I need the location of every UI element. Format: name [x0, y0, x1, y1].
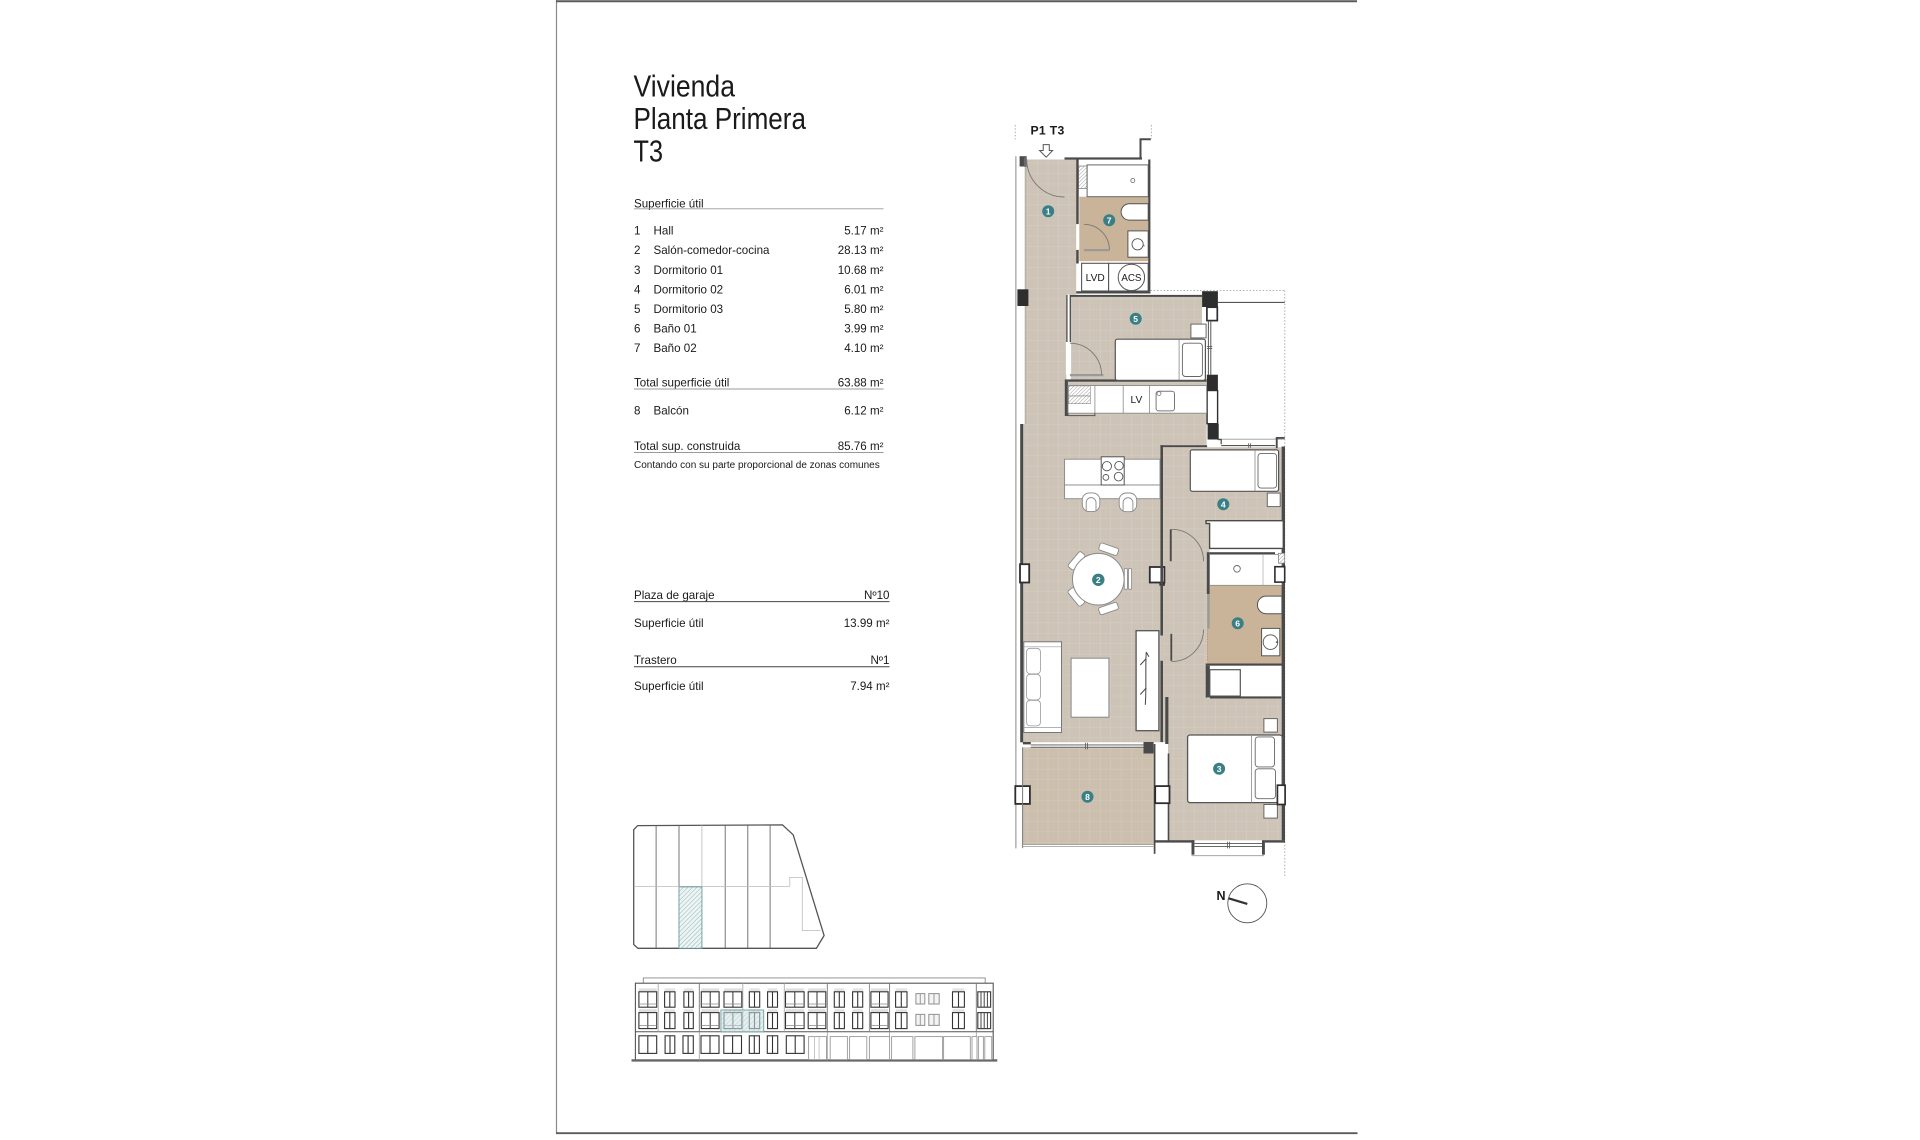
- svg-text:Dormitorio 01: Dormitorio 01: [654, 264, 724, 277]
- svg-text:Baño 01: Baño 01: [654, 323, 697, 336]
- svg-text:3: 3: [634, 264, 640, 277]
- svg-text:Baño 02: Baño 02: [654, 342, 697, 355]
- svg-text:2: 2: [634, 244, 640, 257]
- svg-text:Vivienda: Vivienda: [634, 70, 736, 104]
- svg-text:2: 2: [1096, 575, 1101, 585]
- svg-text:Balcón: Balcón: [654, 404, 689, 417]
- svg-text:Nº10: Nº10: [864, 589, 890, 602]
- svg-text:Hall: Hall: [654, 225, 674, 238]
- svg-text:13.99 m²: 13.99 m²: [844, 617, 890, 630]
- svg-text:5.80 m²: 5.80 m²: [844, 303, 883, 316]
- svg-text:28.13 m²: 28.13 m²: [838, 244, 884, 257]
- svg-text:Salón-comedor-cocina: Salón-comedor-cocina: [654, 244, 771, 257]
- svg-text:N: N: [1217, 889, 1226, 903]
- svg-text:5.17 m²: 5.17 m²: [844, 225, 883, 238]
- svg-text:6: 6: [634, 323, 640, 336]
- svg-text:T3: T3: [634, 135, 664, 169]
- svg-text:7: 7: [634, 342, 640, 355]
- svg-text:Nº1: Nº1: [870, 654, 889, 667]
- svg-text:6.12 m²: 6.12 m²: [844, 404, 883, 417]
- svg-text:8: 8: [1085, 792, 1090, 802]
- svg-text:Plaza de garaje: Plaza de garaje: [634, 589, 715, 602]
- svg-text:6.01 m²: 6.01 m²: [844, 283, 883, 296]
- svg-text:4: 4: [1221, 499, 1226, 509]
- svg-text:8: 8: [634, 404, 640, 417]
- svg-text:4: 4: [634, 283, 641, 296]
- svg-text:Total superficie útil: Total superficie útil: [634, 377, 729, 390]
- svg-text:LV: LV: [1131, 395, 1143, 406]
- svg-text:3.99 m²: 3.99 m²: [844, 323, 883, 336]
- svg-text:Superficie útil: Superficie útil: [634, 680, 704, 693]
- svg-text:63.88 m²: 63.88 m²: [838, 377, 884, 390]
- svg-text:Dormitorio 03: Dormitorio 03: [654, 303, 724, 316]
- svg-text:10.68 m²: 10.68 m²: [838, 264, 884, 277]
- svg-text:P1 T3: P1 T3: [1031, 124, 1065, 138]
- svg-text:Total sup. construida: Total sup. construida: [634, 440, 741, 453]
- svg-text:1: 1: [1046, 206, 1051, 216]
- svg-text:85.76 m²: 85.76 m²: [838, 440, 884, 453]
- svg-text:Planta Primera: Planta Primera: [634, 102, 807, 136]
- svg-text:7: 7: [1107, 216, 1112, 226]
- svg-text:7.94 m²: 7.94 m²: [850, 680, 889, 693]
- svg-text:6: 6: [1235, 618, 1240, 628]
- svg-text:5: 5: [1133, 314, 1138, 324]
- svg-text:Contando con su parte proporci: Contando con su parte proporcional de zo…: [634, 460, 880, 471]
- svg-text:Superficie útil: Superficie útil: [634, 617, 704, 630]
- svg-text:3: 3: [1217, 764, 1222, 774]
- svg-text:LVD: LVD: [1086, 273, 1105, 284]
- svg-text:Dormitorio 02: Dormitorio 02: [654, 283, 724, 296]
- svg-text:ACS: ACS: [1121, 273, 1142, 284]
- svg-text:1: 1: [634, 225, 640, 238]
- svg-text:Trastero: Trastero: [634, 654, 677, 667]
- svg-text:4.10 m²: 4.10 m²: [844, 342, 883, 355]
- svg-text:5: 5: [634, 303, 640, 316]
